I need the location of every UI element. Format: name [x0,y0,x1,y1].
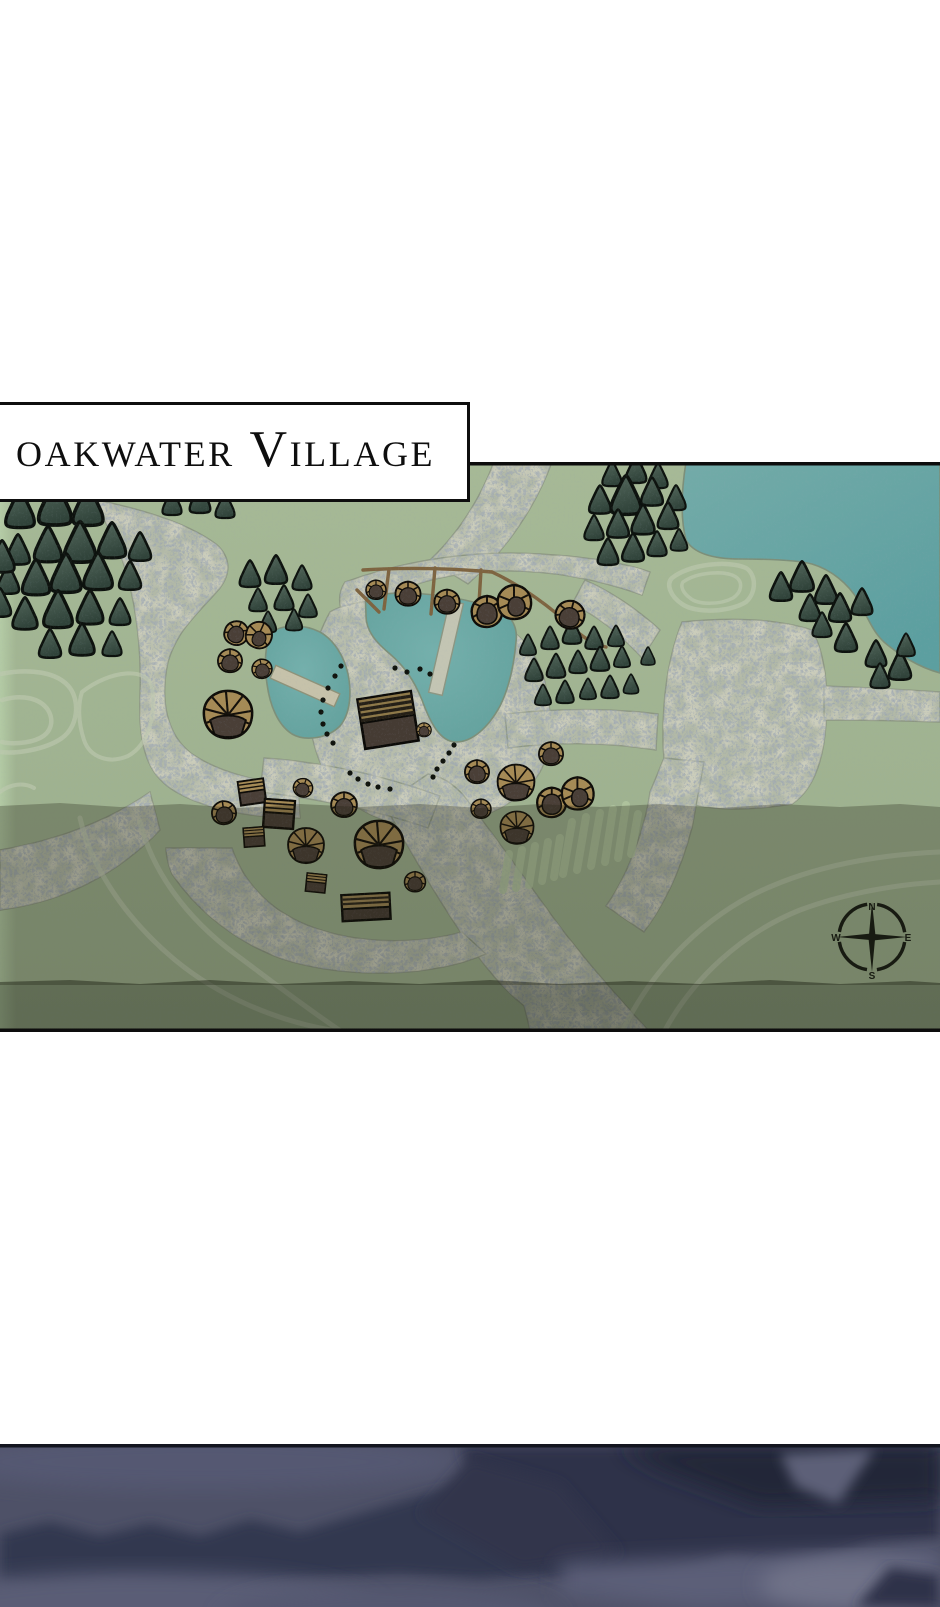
svg-text:E: E [905,933,912,944]
svg-text:N: N [868,902,875,913]
svg-text:S: S [869,971,876,982]
svg-text:W: W [831,933,841,944]
